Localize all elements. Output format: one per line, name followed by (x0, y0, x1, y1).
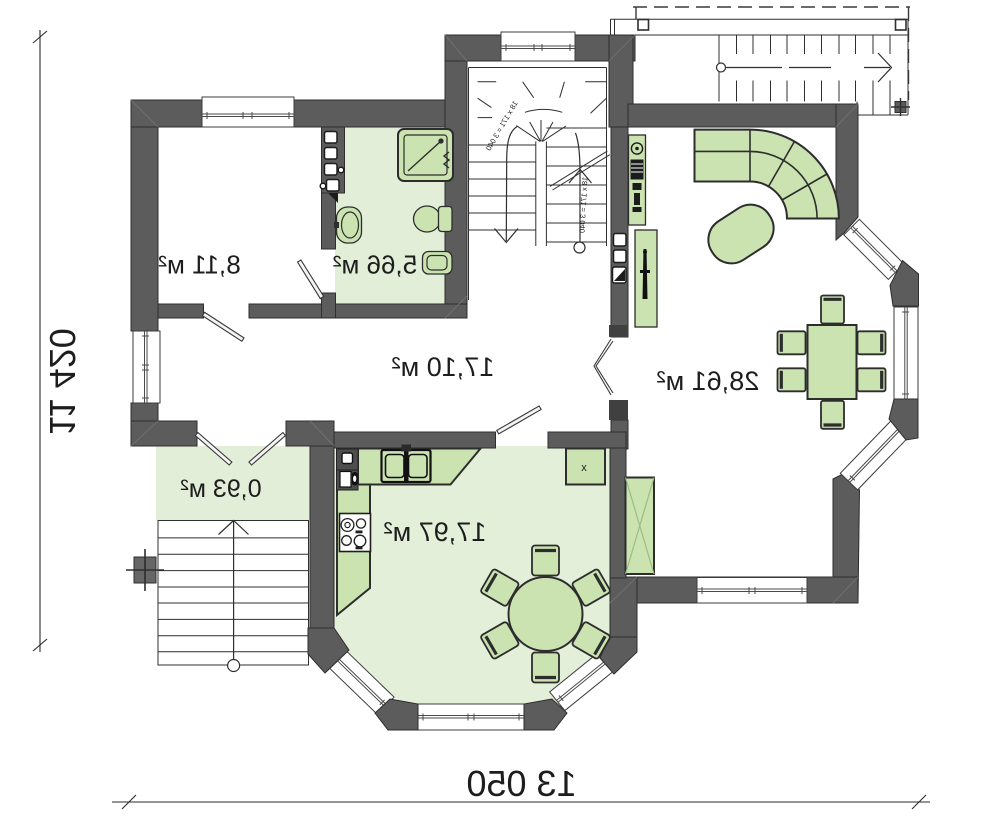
svg-text:17,97 м²: 17,97 м² (384, 517, 487, 547)
svg-text:11 420: 11 420 (42, 328, 83, 435)
svg-text:28,61 м²: 28,61 м² (657, 366, 760, 396)
svg-text:5,66 м²: 5,66 м² (332, 250, 417, 280)
svg-text:x: x (581, 462, 587, 474)
svg-text:17,10 м²: 17,10 м² (392, 352, 495, 382)
svg-text:8,11 м²: 8,11 м² (158, 250, 241, 280)
svg-text:0,93 м²: 0,93 м² (180, 475, 261, 503)
svg-text:13 050: 13 050 (466, 763, 576, 804)
